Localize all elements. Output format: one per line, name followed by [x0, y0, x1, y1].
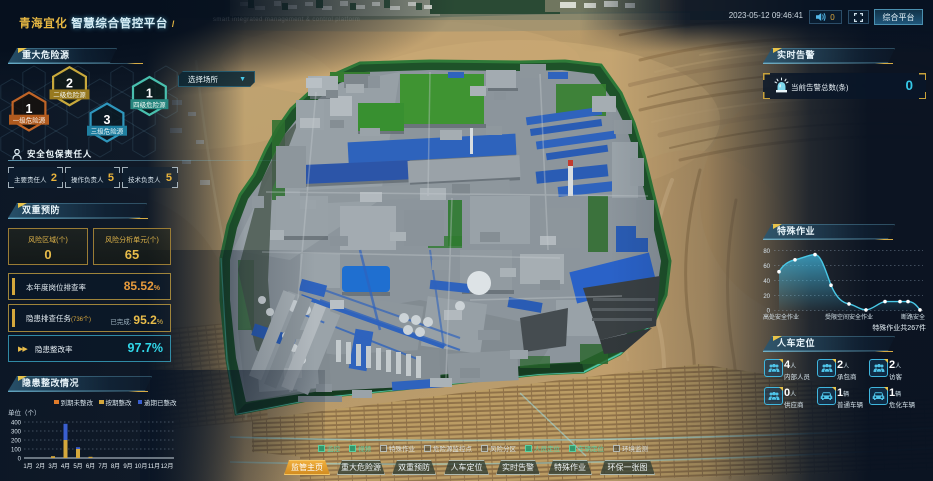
svg-text:5月: 5月 [73, 463, 82, 470]
svg-text:3月: 3月 [48, 463, 57, 470]
svg-text:10月: 10月 [135, 463, 148, 470]
svg-text:0: 0 [767, 309, 771, 315]
svg-text:80: 80 [763, 249, 770, 255]
svg-text:二级危险源: 二级危险源 [53, 90, 86, 99]
svg-text:20: 20 [763, 294, 770, 300]
svg-text:400: 400 [11, 421, 22, 427]
svg-text:3: 3 [104, 113, 111, 127]
svg-text:4月: 4月 [61, 463, 70, 470]
svg-text:11月: 11月 [148, 463, 160, 470]
svg-text:四级危险源: 四级危险源 [133, 100, 166, 109]
svg-text:300: 300 [11, 430, 22, 436]
svg-text:100: 100 [11, 448, 22, 454]
svg-text:9月: 9月 [123, 463, 132, 470]
svg-text:一级危险源: 一级危险源 [13, 115, 46, 124]
svg-text:40: 40 [763, 279, 770, 285]
svg-text:受限空间安全作业: 受限空间安全作业 [825, 313, 873, 321]
svg-text:2月: 2月 [36, 463, 45, 470]
svg-text:12月: 12月 [161, 463, 174, 470]
svg-text:2: 2 [66, 77, 73, 91]
svg-text:200: 200 [11, 439, 22, 445]
svg-text:7月: 7月 [98, 463, 107, 470]
svg-text:断路安全: 断路安全 [901, 313, 925, 321]
svg-text:0: 0 [18, 457, 22, 463]
svg-text:1: 1 [26, 102, 33, 116]
svg-text:三级危险源: 三级危险源 [91, 126, 124, 135]
svg-text:60: 60 [763, 264, 770, 270]
svg-text:1: 1 [146, 87, 153, 101]
svg-text:高处安全作业: 高处安全作业 [763, 313, 799, 321]
svg-text:6月: 6月 [86, 463, 95, 470]
svg-text:8月: 8月 [111, 463, 120, 470]
svg-text:1月: 1月 [23, 463, 32, 470]
